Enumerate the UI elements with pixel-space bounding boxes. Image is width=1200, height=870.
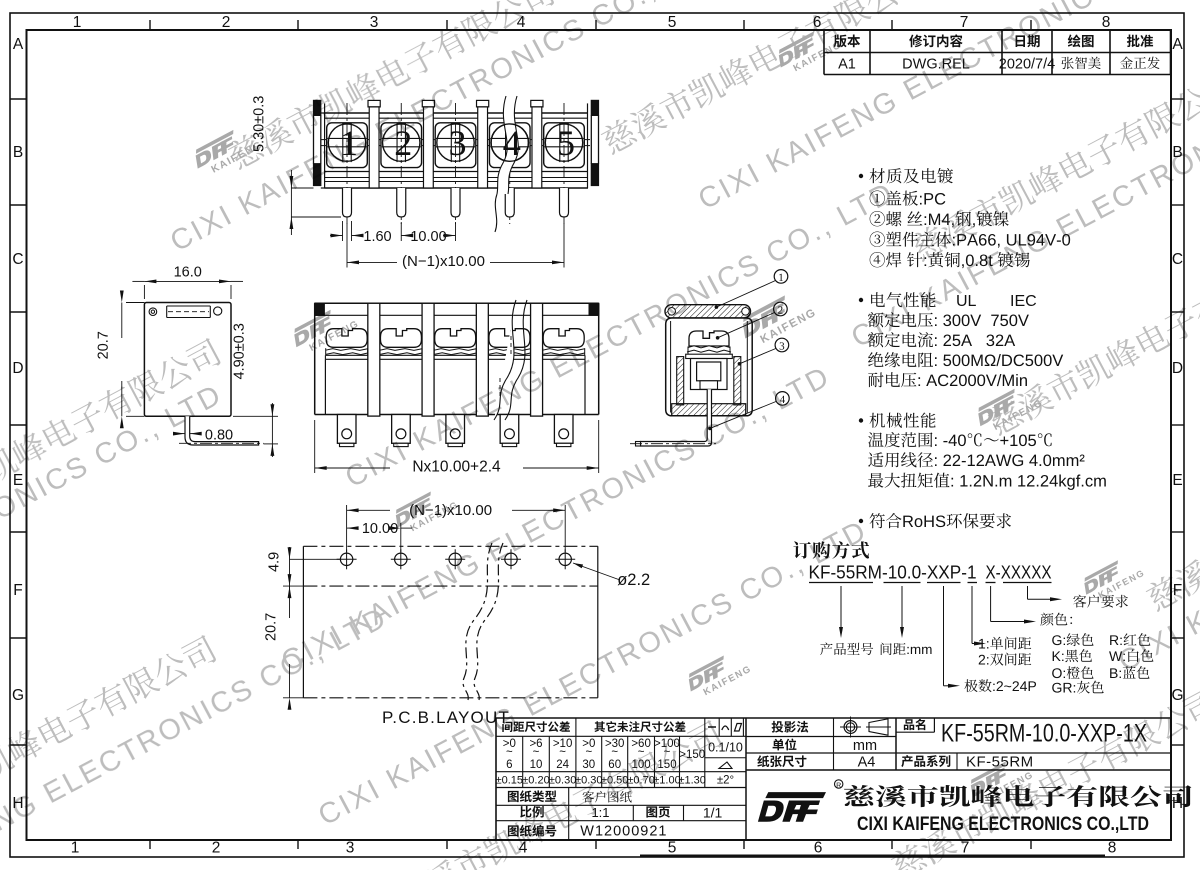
svg-text:0.80: 0.80 (205, 428, 233, 444)
svg-text:60: 60 (608, 759, 621, 771)
svg-text:16.0: 16.0 (174, 265, 202, 281)
svg-text:C: C (12, 251, 23, 268)
svg-text:~: ~ (611, 747, 618, 759)
svg-text:mm: mm (853, 738, 877, 754)
svg-text:~: ~ (506, 747, 513, 759)
svg-text:W12000921: W12000921 (580, 824, 667, 840)
svg-text:3: 3 (449, 123, 467, 163)
svg-text:±1.00: ±1.00 (653, 775, 680, 787)
svg-text:KF-55RM-10.0-XXP-1X: KF-55RM-10.0-XXP-1X (941, 720, 1147, 748)
svg-text:Nx10.00+2.4: Nx10.00+2.4 (412, 459, 501, 476)
svg-text:0.1/10: 0.1/10 (708, 741, 743, 755)
svg-text:A: A (13, 36, 24, 53)
svg-text:~: ~ (585, 747, 592, 759)
svg-text:G: G (1171, 687, 1183, 704)
svg-text:E: E (1172, 472, 1182, 489)
svg-text:1: 1 (73, 14, 82, 31)
svg-text:5: 5 (668, 14, 677, 31)
svg-text:A: A (1172, 36, 1183, 53)
svg-text:8: 8 (1102, 14, 1111, 31)
svg-text:G: G (12, 687, 24, 704)
svg-text:3: 3 (370, 14, 379, 31)
svg-text:~: ~ (559, 747, 566, 759)
svg-text:8: 8 (1108, 840, 1117, 857)
svg-text:KF-55RM-10.0-XXP-1: KF-55RM-10.0-XXP-1 (809, 563, 977, 583)
svg-text:D: D (12, 360, 23, 377)
svg-text:ø2.2: ø2.2 (617, 571, 650, 589)
svg-text:30: 30 (582, 759, 595, 771)
svg-text:(N−1)x10.00: (N−1)x10.00 (402, 253, 485, 270)
svg-text:4: 4 (503, 123, 521, 163)
svg-text:1: 1 (71, 840, 80, 857)
svg-text:2: 2 (222, 14, 231, 31)
svg-text:5: 5 (557, 123, 575, 163)
svg-text:A1: A1 (838, 57, 856, 73)
svg-text:2020/7/4: 2020/7/4 (999, 57, 1055, 73)
svg-text:B: B (13, 144, 23, 161)
svg-text:1.60: 1.60 (363, 229, 391, 245)
svg-text:±1.30: ±1.30 (678, 775, 705, 787)
svg-text:6: 6 (814, 840, 823, 857)
svg-text:±0.20: ±0.20 (522, 775, 549, 787)
svg-text:7: 7 (960, 14, 969, 31)
svg-text:24: 24 (556, 759, 569, 771)
svg-text:5: 5 (668, 840, 677, 857)
svg-text:~: ~ (533, 747, 540, 759)
svg-text:A4: A4 (858, 755, 876, 771)
svg-text:±0.15: ±0.15 (496, 775, 523, 787)
svg-text:10.00: 10.00 (362, 521, 398, 537)
svg-text:IEC: IEC (1010, 293, 1037, 310)
svg-text:C: C (1172, 251, 1183, 268)
svg-text:±0.30: ±0.30 (575, 775, 602, 787)
svg-text:F: F (13, 582, 22, 599)
svg-text:3: 3 (346, 840, 355, 857)
svg-text:D: D (1172, 360, 1183, 377)
svg-text:±2°: ±2° (717, 775, 734, 787)
svg-text:6: 6 (506, 759, 512, 771)
svg-text:10: 10 (530, 759, 543, 771)
svg-text:1/1: 1/1 (703, 805, 723, 821)
svg-text:±0.30: ±0.30 (549, 775, 576, 787)
svg-text:2: 2 (212, 840, 221, 857)
svg-text:10.00: 10.00 (410, 229, 446, 245)
svg-text:X-XXXXX: X-XXXXX (986, 563, 1052, 583)
svg-text:CIXI KAIFENG ELECTRONICS CO.,L: CIXI KAIFENG ELECTRONICS CO.,LTD (857, 813, 1149, 835)
